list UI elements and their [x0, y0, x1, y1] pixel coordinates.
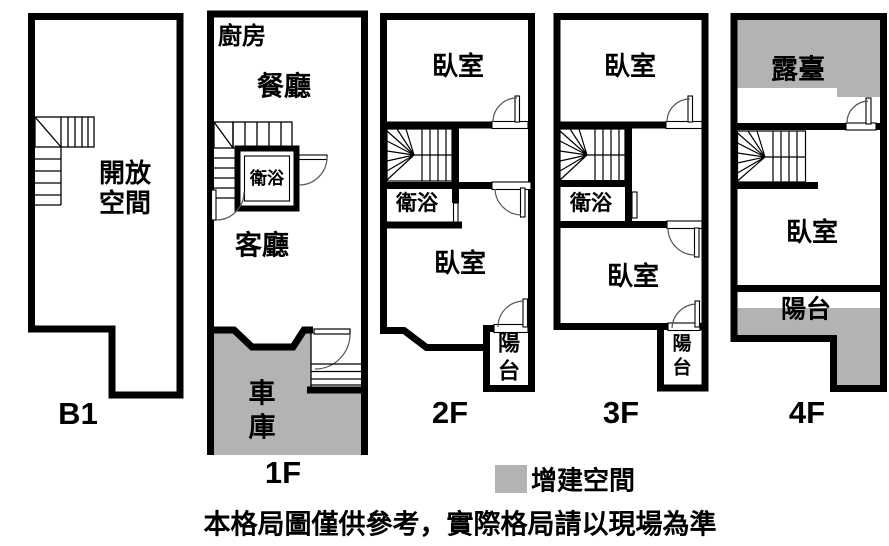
floor-label-b1: B1 [58, 396, 98, 432]
room-label-kitchen: 廚房 [218, 23, 266, 51]
room-label-bathroom-1f: 衛浴 [250, 169, 284, 189]
floorplan-page: 開放空間 B1 廚房 餐廳 衛浴 客廳 車庫 1F 臥室 衛浴 臥室 陽台 2F… [0, 0, 889, 546]
room-label-terrace: 露臺 [771, 54, 825, 85]
legend-added-space-swatch [495, 465, 527, 493]
floor-label-1f: 1F [265, 455, 301, 491]
room-label-bathroom-3f: 衛浴 [570, 192, 612, 216]
room-label-living: 客廳 [235, 230, 289, 261]
room-label-balcony-3f: 陽台 [672, 332, 693, 380]
floor-label-2f: 2F [432, 395, 468, 431]
room-label-bedroom-2f-top: 臥室 [432, 52, 484, 82]
floor-label-3f: 3F [603, 395, 639, 431]
room-label-bedroom-2f-bottom: 臥室 [434, 249, 486, 279]
room-label-open-space: 開放空間 [96, 159, 154, 219]
legend-added-space-label: 增建空間 [531, 461, 635, 498]
floor-label-4f: 4F [789, 395, 825, 431]
room-label-balcony-2f: 陽台 [497, 330, 521, 385]
room-label-bedroom-3f-bottom: 臥室 [607, 262, 659, 292]
room-label-garage: 車庫 [248, 377, 277, 445]
room-label-dining: 餐廳 [257, 71, 311, 102]
room-label-bedroom-4f: 臥室 [786, 218, 838, 248]
door-3f-bathroom [632, 192, 637, 218]
room-label-bathroom-2f: 衛浴 [396, 192, 438, 216]
room-label-bedroom-3f-top: 臥室 [604, 52, 656, 82]
door-leaf [314, 329, 350, 334]
disclaimer-caption: 本格局圖僅供參考，實際格局請以現場為準 [204, 509, 717, 540]
room-label-balcony-4f: 陽台 [781, 296, 831, 325]
